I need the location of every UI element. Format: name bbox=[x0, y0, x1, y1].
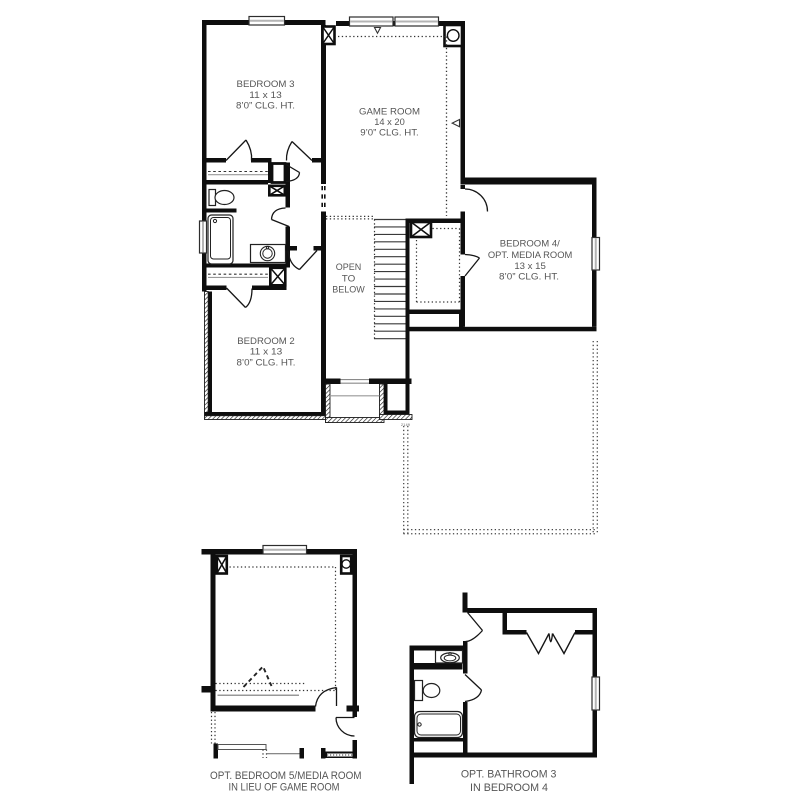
svg-text:BEDROOM 2: BEDROOM 2 bbox=[237, 336, 295, 347]
svg-text:OPT. MEDIA ROOM: OPT. MEDIA ROOM bbox=[488, 250, 573, 261]
svg-text:13 x 15: 13 x 15 bbox=[514, 261, 546, 272]
svg-text:GAME ROOM: GAME ROOM bbox=[359, 106, 420, 117]
svg-text:BEDROOM 4/: BEDROOM 4/ bbox=[500, 239, 560, 250]
svg-text:OPEN: OPEN bbox=[336, 262, 362, 273]
svg-text:11 x 13: 11 x 13 bbox=[250, 347, 283, 358]
svg-text:8’0” CLG. HT.: 8’0” CLG. HT. bbox=[236, 101, 295, 112]
svg-text:IN BEDROOM 4: IN BEDROOM 4 bbox=[470, 782, 548, 794]
svg-text:8’0” CLG. HT.: 8’0” CLG. HT. bbox=[499, 271, 559, 282]
svg-text:IN LIEU OF GAME ROOM: IN LIEU OF GAME ROOM bbox=[229, 782, 340, 794]
svg-text:BEDROOM 3: BEDROOM 3 bbox=[237, 79, 295, 90]
svg-text:TO: TO bbox=[342, 273, 356, 284]
svg-text:8’0” CLG. HT.: 8’0” CLG. HT. bbox=[237, 357, 296, 368]
svg-text:9’0” CLG. HT.: 9’0” CLG. HT. bbox=[360, 127, 419, 138]
svg-text:2149: 2149 bbox=[401, 423, 410, 427]
svg-text:OPT. BATHROOM 3: OPT. BATHROOM 3 bbox=[461, 769, 557, 781]
svg-text:OPT. BEDROOM 5/MEDIA ROOM: OPT. BEDROOM 5/MEDIA ROOM bbox=[210, 770, 362, 782]
svg-text:14 x 20: 14 x 20 bbox=[374, 117, 405, 128]
svg-text:BELOW: BELOW bbox=[332, 284, 365, 295]
svg-text:11 x 13: 11 x 13 bbox=[249, 90, 282, 101]
